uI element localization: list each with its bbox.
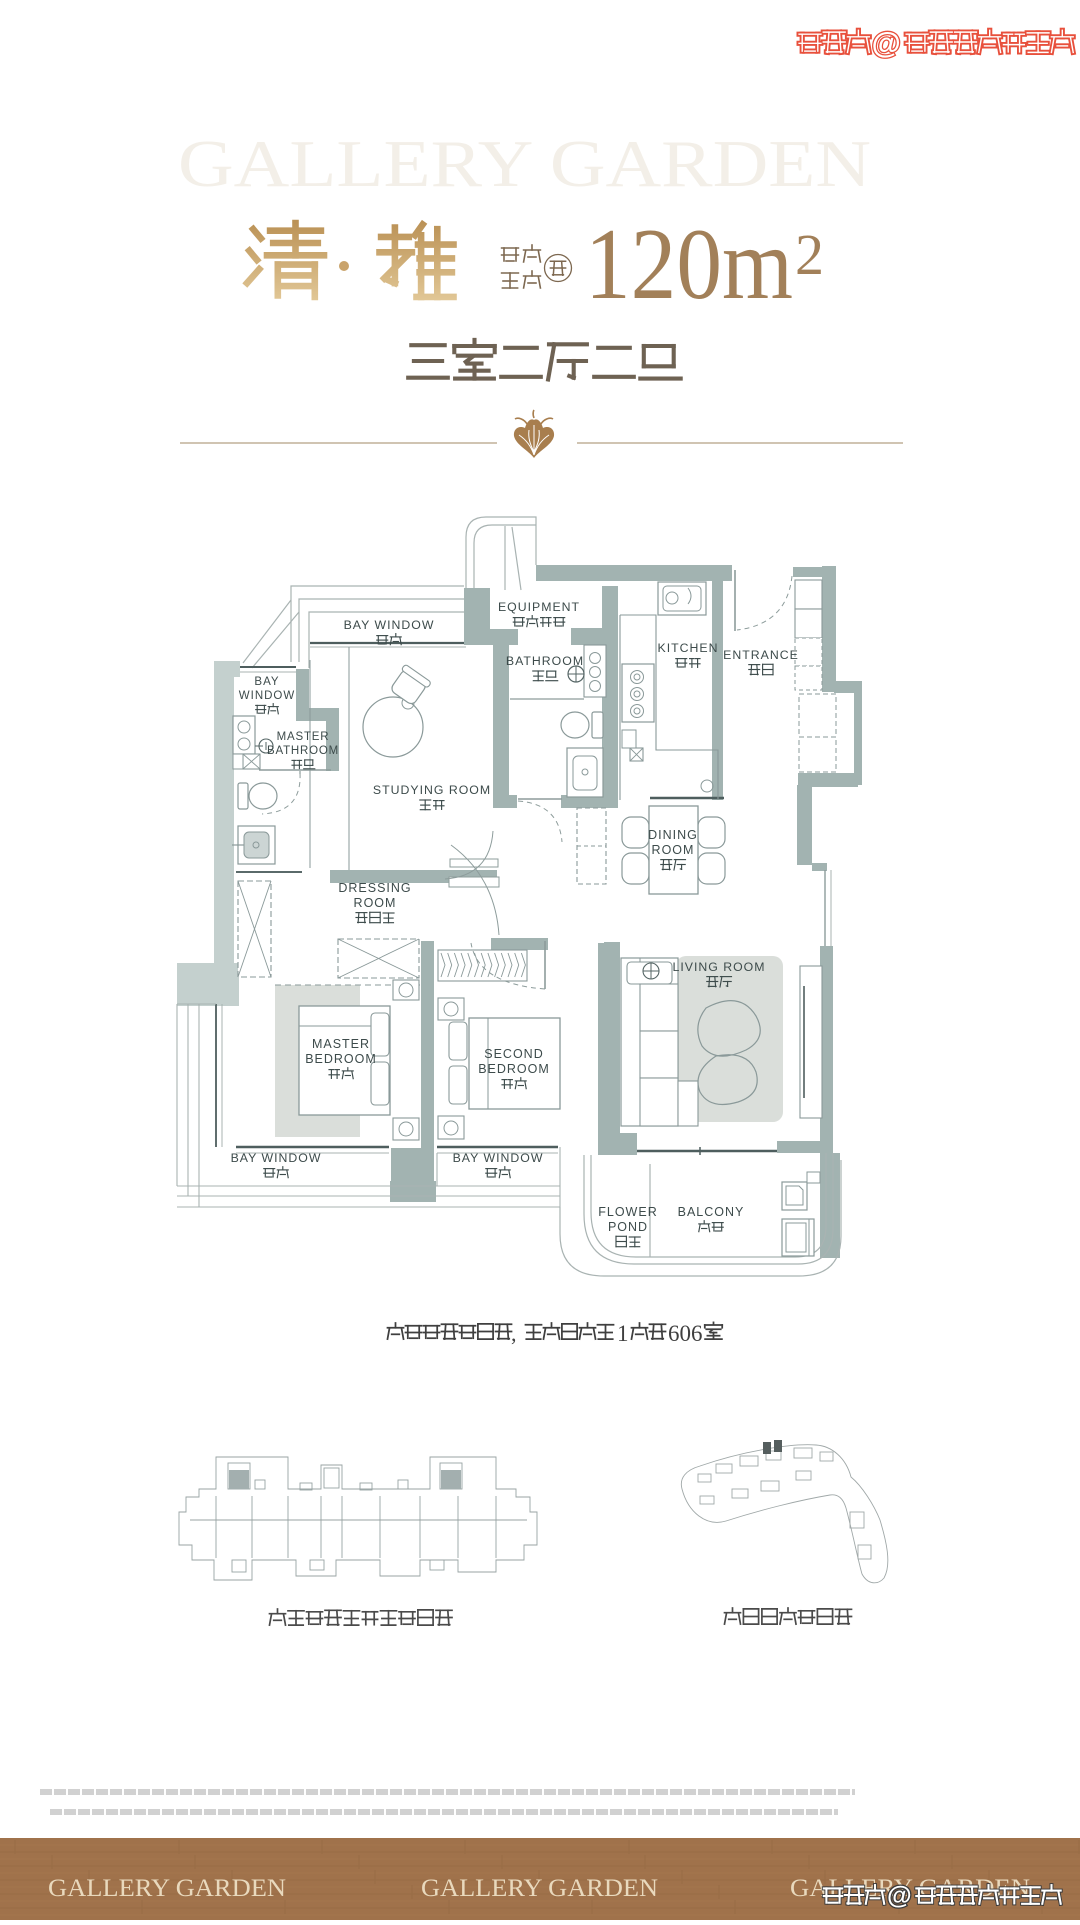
svg-text:KITCHEN: KITCHEN <box>658 641 719 655</box>
svg-text:EQUIPMENT: EQUIPMENT <box>498 600 580 614</box>
svg-text:MASTER: MASTER <box>277 731 330 743</box>
svg-text:BAY WINDOW: BAY WINDOW <box>453 1151 544 1165</box>
svg-text:POND: POND <box>608 1220 648 1234</box>
svg-text:BATHROOM: BATHROOM <box>267 745 339 757</box>
svg-text:STUDYING ROOM: STUDYING ROOM <box>373 783 491 797</box>
svg-text:MASTER: MASTER <box>312 1037 370 1051</box>
svg-text:DINING: DINING <box>648 828 698 842</box>
svg-text:,: , <box>511 1321 517 1346</box>
svg-text:SECOND: SECOND <box>484 1047 543 1061</box>
svg-text:120m: 120m <box>585 208 793 321</box>
svg-text:LIVING ROOM: LIVING ROOM <box>673 960 766 974</box>
svg-text:2: 2 <box>795 222 824 287</box>
svg-text:ROOM: ROOM <box>354 896 397 910</box>
svg-text:1: 1 <box>617 1321 629 1346</box>
svg-text:DRESSING: DRESSING <box>338 881 411 895</box>
svg-text:BALCONY: BALCONY <box>678 1205 745 1219</box>
svg-text:WINDOW: WINDOW <box>239 690 295 702</box>
svg-text:GALLERY GARDEN: GALLERY GARDEN <box>48 1875 286 1902</box>
svg-text:ROOM: ROOM <box>652 843 695 857</box>
svg-text:@: @ <box>872 27 901 60</box>
svg-text:BEDROOM: BEDROOM <box>478 1062 550 1076</box>
svg-text:GALLERY GARDEN: GALLERY GARDEN <box>421 1875 658 1902</box>
svg-text:ENTRANCE: ENTRANCE <box>723 648 799 662</box>
svg-text:@: @ <box>887 1882 912 1910</box>
svg-text:BEDROOM: BEDROOM <box>305 1052 377 1066</box>
svg-text:BAY WINDOW: BAY WINDOW <box>344 618 435 632</box>
svg-text:BAY WINDOW: BAY WINDOW <box>231 1151 322 1165</box>
svg-text:GALLERY GARDEN: GALLERY GARDEN <box>178 127 871 201</box>
svg-text:BATHROOM: BATHROOM <box>506 654 584 668</box>
svg-text:606: 606 <box>668 1321 703 1346</box>
svg-text:BAY: BAY <box>254 676 279 688</box>
svg-text:FLOWER: FLOWER <box>598 1205 657 1219</box>
